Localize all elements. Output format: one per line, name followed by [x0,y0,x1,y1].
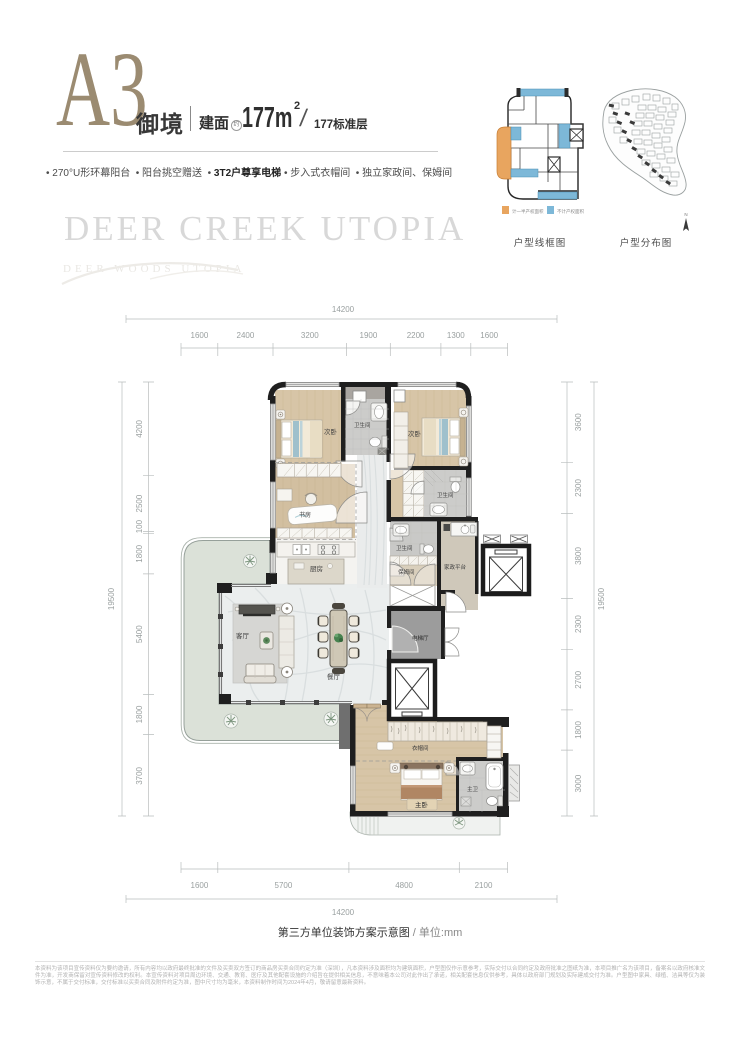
svg-text:1800: 1800 [135,705,144,723]
svg-text:主卧: 主卧 [415,800,429,809]
svg-text:3000: 3000 [574,774,583,792]
svg-text:3800: 3800 [574,547,583,565]
svg-text:3700: 3700 [135,766,144,784]
svg-text:卫生间: 卫生间 [437,491,454,499]
svg-text:2300: 2300 [574,615,583,633]
svg-text:1800: 1800 [135,544,144,562]
svg-text:N: N [684,212,687,217]
svg-text:计一半产权面积: 计一半产权面积 [512,208,544,215]
svg-text:卫生间: 卫生间 [354,421,371,429]
svg-text:4200: 4200 [135,419,144,437]
svg-text:1800: 1800 [574,721,583,739]
svg-text:4800: 4800 [395,881,413,890]
svg-text:3200: 3200 [301,331,319,340]
svg-text:19500: 19500 [597,587,606,610]
svg-text:2400: 2400 [237,331,255,340]
svg-text:客厅: 客厅 [236,631,250,640]
svg-text:100: 100 [135,519,144,533]
svg-text:户型分布图: 户型分布图 [620,237,673,249]
svg-text:14200: 14200 [332,908,355,917]
svg-text:5400: 5400 [135,625,144,643]
svg-text:厨房: 厨房 [310,564,323,573]
svg-text:1600: 1600 [480,331,498,340]
svg-text:衣帽间: 衣帽间 [412,744,429,752]
svg-text:2100: 2100 [475,881,493,890]
svg-text:家政平台: 家政平台 [444,563,467,571]
svg-text:1600: 1600 [191,881,209,890]
svg-text:不计产权面积: 不计产权面积 [557,208,584,215]
svg-text:书房: 书房 [299,511,311,519]
svg-text:2700: 2700 [574,670,583,688]
svg-text:主卫: 主卫 [467,785,479,793]
svg-text:电梯厅: 电梯厅 [412,634,429,642]
svg-text:1900: 1900 [360,331,378,340]
svg-text:保姆间: 保姆间 [398,568,415,576]
svg-text:卫生间: 卫生间 [396,544,413,552]
svg-text:2500: 2500 [135,494,144,512]
svg-text:次卧: 次卧 [324,427,338,436]
svg-text:户型线框图: 户型线框图 [514,237,567,249]
svg-text:14200: 14200 [332,305,355,314]
svg-text:3600: 3600 [574,413,583,431]
svg-text:2300: 2300 [574,479,583,497]
svg-text:5700: 5700 [275,881,293,890]
svg-text:次卧: 次卧 [408,429,422,438]
svg-text:2200: 2200 [407,331,425,340]
svg-text:19500: 19500 [107,587,116,610]
svg-text:餐厅: 餐厅 [327,672,341,681]
svg-text:1600: 1600 [191,331,209,340]
svg-text:1300: 1300 [447,331,465,340]
